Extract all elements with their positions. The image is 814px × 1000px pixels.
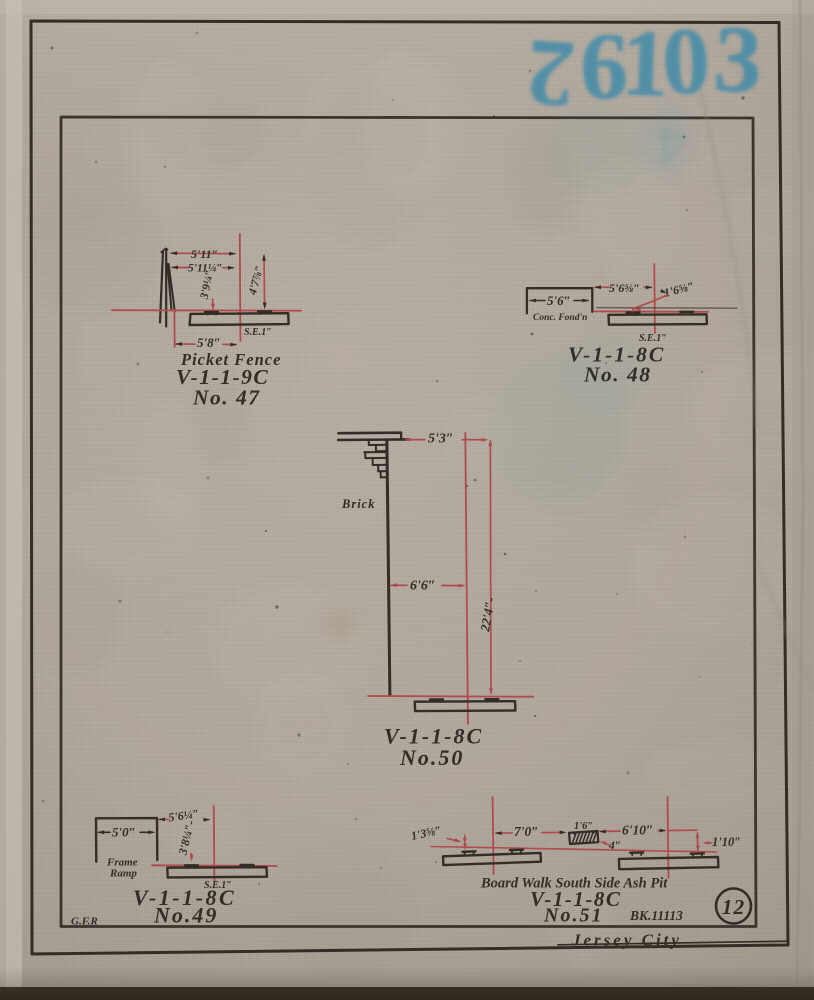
- svg-text:5'8″: 5'8″: [197, 335, 221, 350]
- svg-text:No.50: No.50: [399, 745, 464, 770]
- svg-text:12: 12: [722, 895, 746, 919]
- svg-text:No.49: No.49: [153, 903, 218, 928]
- svg-text:5'11″: 5'11″: [191, 247, 218, 261]
- svg-text:1'6″: 1'6″: [574, 821, 593, 832]
- svg-text:No. 47: No. 47: [192, 386, 261, 410]
- svg-text:Ramp: Ramp: [109, 868, 137, 880]
- svg-text:Conc. Fond'n: Conc. Fond'n: [533, 313, 587, 323]
- svg-text:3: 3: [711, 5, 764, 113]
- svg-text:6'6″: 6'6″: [410, 579, 436, 594]
- svg-text:1'10″: 1'10″: [712, 835, 741, 849]
- svg-text:BK.11113: BK.11113: [629, 908, 683, 923]
- svg-text:5'6″: 5'6″: [547, 293, 571, 308]
- svg-text:5'0″: 5'0″: [112, 825, 136, 840]
- svg-text:5'3″: 5'3″: [428, 432, 454, 447]
- svg-text:6'10″: 6'10″: [622, 823, 653, 838]
- svg-text:7'0″: 7'0″: [514, 824, 539, 839]
- svg-text:Brick: Brick: [341, 497, 375, 511]
- svg-text:0: 0: [660, 7, 711, 115]
- svg-text:2: 2: [524, 19, 579, 128]
- svg-text:Jersey City: Jersey City: [571, 931, 682, 950]
- svg-text:5'6⅝″: 5'6⅝″: [609, 281, 640, 295]
- svg-text:No.51: No.51: [543, 905, 603, 927]
- svg-text:G.F.R: G.F.R: [71, 916, 98, 928]
- svg-text:No. 48: No. 48: [583, 363, 652, 387]
- svg-text:S.E.1″: S.E.1″: [244, 327, 272, 338]
